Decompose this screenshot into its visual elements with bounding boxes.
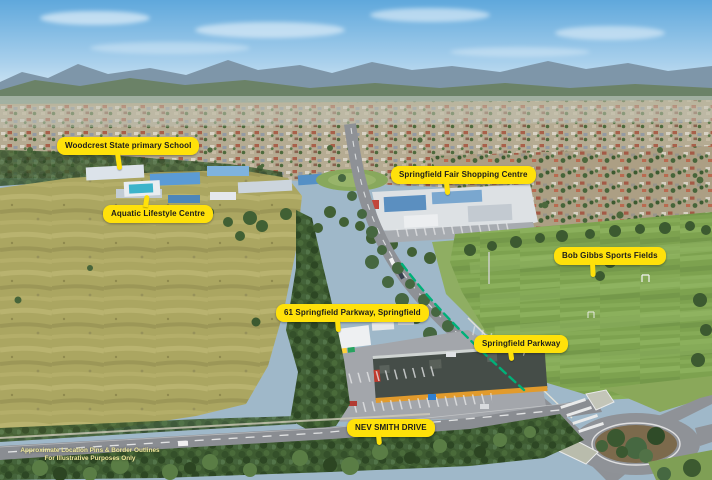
callout-shopping-centre: Springfield Fair Shopping Centre: [391, 166, 536, 184]
callout-springfield-parkway-label: Springfield Parkway: [482, 339, 560, 348]
callout-sports-fields: Bob Gibbs Sports Fields: [554, 247, 666, 265]
callout-shopping-centre-label: Springfield Fair Shopping Centre: [399, 170, 528, 179]
callout-shopping-centre-pointer: [444, 182, 450, 195]
callout-springfield-parkway-pointer: [508, 351, 514, 362]
aquatic-centre-pool: [124, 180, 161, 197]
callout-aquatic-centre-label: Aquatic Lifestyle Centre: [111, 209, 205, 218]
aerial-photo-scene: [0, 0, 712, 480]
callout-sports-fields-pointer: [590, 263, 596, 277]
callout-property-address: 61 Springfield Parkway, Springfield: [276, 304, 429, 322]
callout-woodcrest-school-label: Woodcrest State primary School: [65, 141, 191, 150]
aerial-photo: Woodcrest State primary School Aquatic L…: [0, 0, 712, 480]
callout-springfield-parkway: Springfield Parkway: [474, 335, 568, 353]
callout-sports-fields-label: Bob Gibbs Sports Fields: [562, 251, 658, 260]
callout-nev-smith-drive: NEV SMITH DRIVE: [347, 419, 435, 437]
callout-woodcrest-school: Woodcrest State primary School: [57, 137, 199, 155]
disclaimer-note: Approximate Location Pins & Border Outli…: [12, 447, 168, 464]
disclaimer-line-2: For Illustrative Purposes Only: [12, 455, 168, 463]
callout-property-address-label: 61 Springfield Parkway, Springfield: [284, 308, 421, 317]
callout-aquatic-centre: Aquatic Lifestyle Centre: [103, 205, 213, 223]
callout-nev-smith-drive-label: NEV SMITH DRIVE: [355, 423, 427, 432]
callout-nev-smith-drive-pointer: [376, 435, 382, 445]
callout-aquatic-centre-pointer: [143, 195, 150, 208]
callout-property-address-pointer: [335, 320, 341, 332]
